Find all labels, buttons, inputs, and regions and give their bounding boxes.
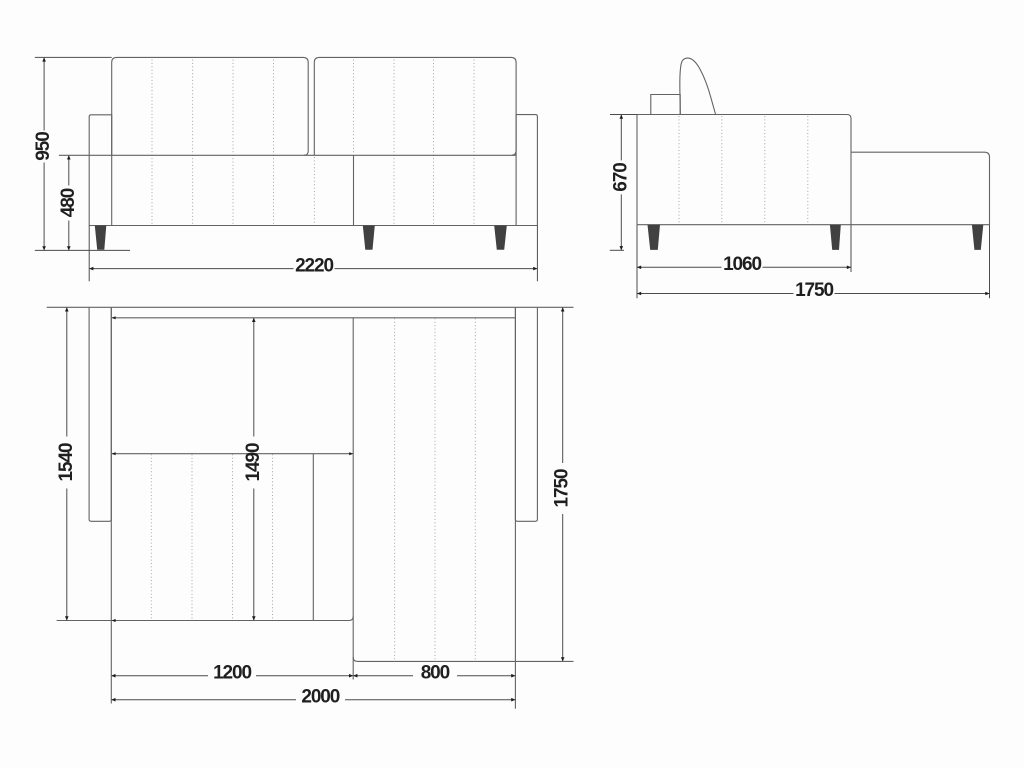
svg-text:1540: 1540	[56, 443, 77, 481]
svg-text:670: 670	[610, 163, 631, 192]
svg-text:950: 950	[33, 132, 54, 161]
svg-text:1200: 1200	[213, 662, 251, 683]
svg-text:1060: 1060	[723, 254, 761, 275]
svg-text:2000: 2000	[301, 686, 339, 707]
svg-text:480: 480	[58, 188, 79, 217]
svg-text:1750: 1750	[795, 280, 833, 301]
svg-text:1490: 1490	[243, 443, 264, 481]
svg-text:1750: 1750	[552, 469, 573, 507]
svg-text:800: 800	[421, 662, 450, 683]
svg-text:2220: 2220	[295, 255, 333, 276]
